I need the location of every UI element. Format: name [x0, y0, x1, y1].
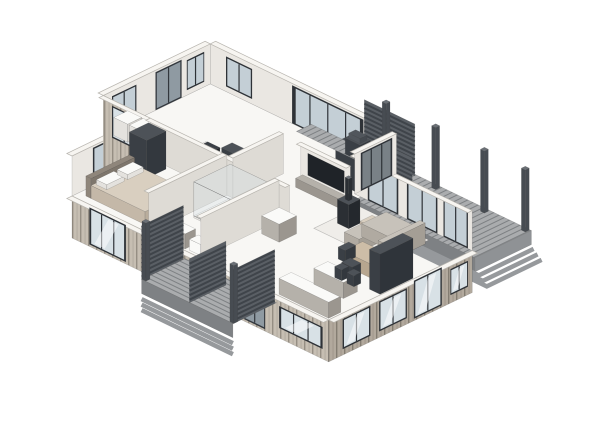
screenshot-root: 3D isometric cutaway rendering of a sing…: [0, 0, 600, 438]
deck-post-2: [432, 124, 440, 190]
deck-post-4: [521, 166, 529, 232]
porch-post-right: [230, 262, 238, 324]
floor-plan-render: 3D isometric cutaway rendering of a sing…: [0, 0, 600, 438]
deck-post-3: [481, 147, 489, 213]
stove-flue: [345, 176, 352, 201]
bar-stool-2: [347, 269, 361, 287]
porch-post-left: [142, 219, 150, 281]
bar-stool-1: [335, 263, 349, 281]
